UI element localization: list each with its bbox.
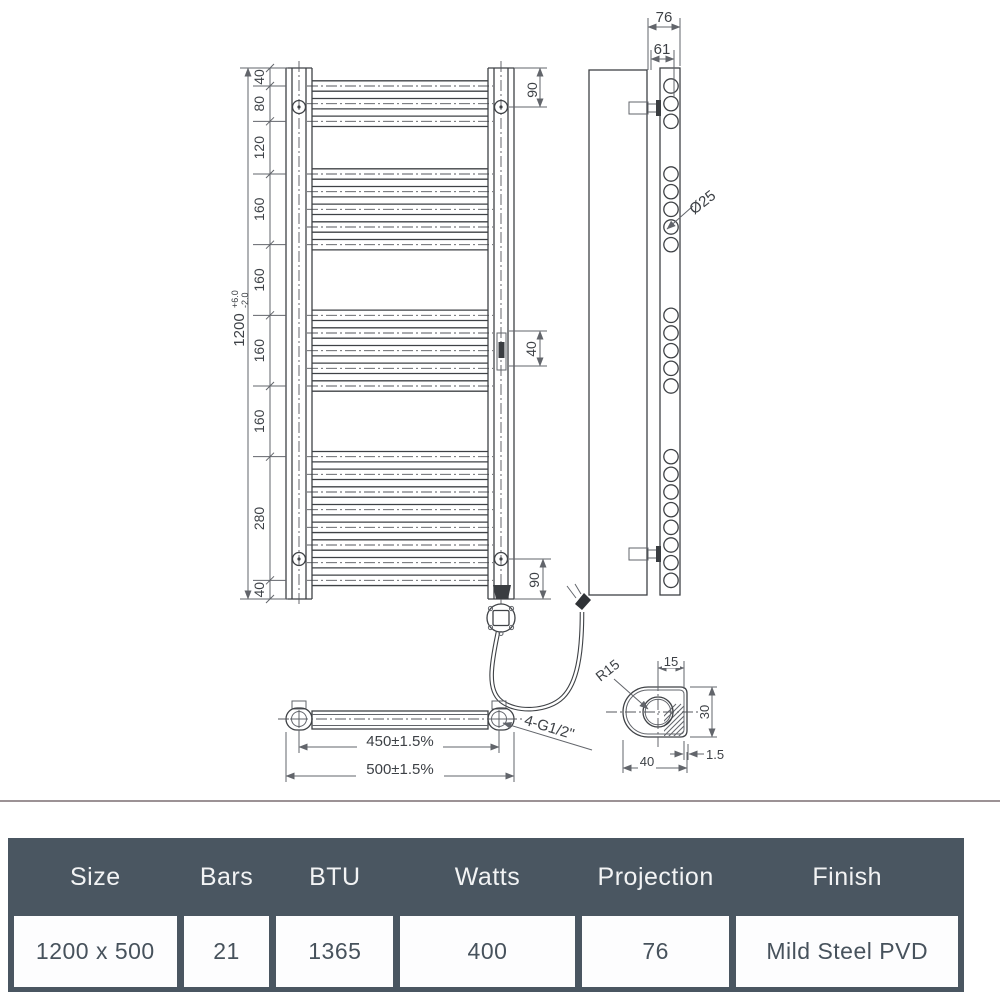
dim-bracket-61: 61 xyxy=(654,41,671,58)
dim-segment-280: 280 xyxy=(251,507,267,531)
side-dimensions: 76 61 Ø25 xyxy=(648,9,719,229)
spec-table: Size Bars BTU Watts Projection Finish 12… xyxy=(8,838,964,992)
tolerance-minus: -2.0 xyxy=(240,292,250,308)
dim-segment-40-top: 40 xyxy=(251,69,267,85)
left-tube xyxy=(286,61,312,606)
value-size: 1200 x 500 xyxy=(14,916,177,987)
plan-dimensions: 450±1.5% 500±1.5% 4-G1/2" xyxy=(286,712,592,782)
dim-overall-height: 1200 +6.0 -2.0 xyxy=(230,290,250,346)
front-view: 40 80 120 160 160 160 160 280 40 1200 +6… xyxy=(230,61,591,709)
dim-segment-80: 80 xyxy=(251,96,267,112)
dim-bottom-bracket-90: 90 xyxy=(526,572,542,588)
value-bars: 21 xyxy=(184,916,270,987)
side-tube xyxy=(660,68,680,595)
towel-radiator-spec-sheet: 40 80 120 160 160 160 160 280 40 1200 +6… xyxy=(0,0,1000,1000)
header-size: Size xyxy=(14,838,177,916)
element-gland xyxy=(493,585,511,599)
side-view: 76 61 Ø25 xyxy=(589,9,719,595)
power-cable xyxy=(492,612,582,709)
horizontal-bars xyxy=(307,81,493,586)
dim-height-30: 30 xyxy=(697,705,712,719)
dim-segment-160-2: 160 xyxy=(251,268,267,292)
element-sleeve xyxy=(497,333,506,370)
plan-screw-right xyxy=(490,710,508,728)
dim-hole-offset-15: 15 xyxy=(664,654,678,669)
plan-view: 450±1.5% 500±1.5% 4-G1/2" xyxy=(278,701,592,782)
value-projection: 76 xyxy=(582,916,730,987)
plan-bar xyxy=(312,711,488,729)
value-finish: Mild Steel PVD xyxy=(736,916,958,987)
bar-cross-sections xyxy=(664,79,678,588)
dim-bar-diameter: Ø25 xyxy=(686,187,719,218)
dim-top-bracket-90: 90 xyxy=(524,82,540,98)
header-projection: Projection xyxy=(582,838,730,916)
wall-section xyxy=(589,70,647,595)
dim-segment-160-3: 160 xyxy=(251,339,267,363)
dim-centres-450: 450±1.5% xyxy=(366,733,433,750)
side-bracket-bottom xyxy=(629,546,661,562)
dim-overall-500: 500±1.5% xyxy=(366,761,433,778)
header-watts: Watts xyxy=(400,838,575,916)
overall-height-value: 1200 xyxy=(231,313,248,346)
dim-sleeve-40: 40 xyxy=(523,341,539,357)
header-finish: Finish xyxy=(736,838,958,916)
section-divider xyxy=(0,800,1000,802)
value-watts: 400 xyxy=(400,916,575,987)
dim-segment-160-4: 160 xyxy=(251,409,267,433)
right-dimensions: 90 40 90 xyxy=(509,68,551,599)
value-btu: 1365 xyxy=(276,916,393,987)
header-bars: Bars xyxy=(184,838,270,916)
header-btu: BTU xyxy=(276,838,393,916)
plan-screw-left xyxy=(290,710,308,728)
spec-table-header: Size Bars BTU Watts Projection Finish xyxy=(14,838,958,916)
left-dimension-chain: 40 80 120 160 160 160 160 280 40 1200 +6… xyxy=(230,64,288,603)
dim-projection-76: 76 xyxy=(656,9,673,26)
dim-wall-1-5: 1.5 xyxy=(706,747,724,762)
dim-segment-40-bottom: 40 xyxy=(251,582,267,598)
radius-label-r15: R15 xyxy=(592,656,622,685)
side-bracket-top xyxy=(629,100,661,116)
detail-view: 15 30 40 1.5 R15 xyxy=(592,654,731,773)
thread-label: 4-G1/2" xyxy=(522,712,576,743)
tolerance-plus: +6.0 xyxy=(230,290,240,308)
dim-segment-120: 120 xyxy=(251,136,267,160)
dim-segment-160-1: 160 xyxy=(251,197,267,221)
wall-bracket-screws xyxy=(293,101,508,566)
dim-width-40: 40 xyxy=(640,754,654,769)
technical-drawing: 40 80 120 160 160 160 160 280 40 1200 +6… xyxy=(0,0,1000,800)
electric-element xyxy=(487,584,591,709)
spec-table-row: 1200 x 500 21 1365 400 76 Mild Steel PVD xyxy=(14,916,958,987)
